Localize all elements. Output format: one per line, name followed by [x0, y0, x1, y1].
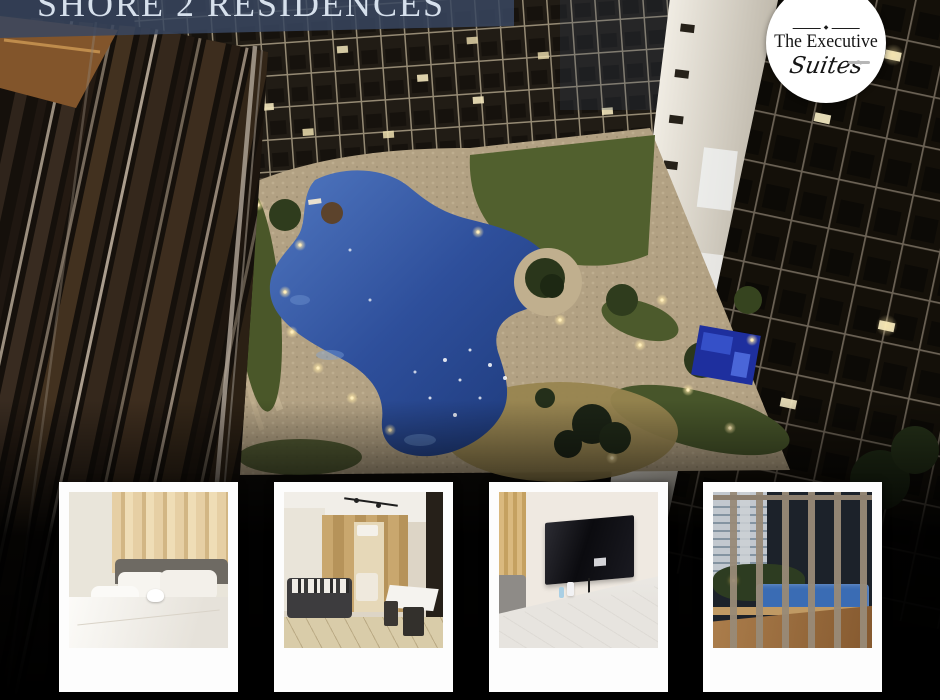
dining-chair: [384, 601, 398, 626]
bedroom-photo: [69, 492, 228, 648]
logo-name-line2: Suites: [764, 53, 889, 79]
listing-flyer: SHORE 2 RESIDENCES ◆ The Executive Suite…: [0, 0, 940, 700]
tv-glare: [594, 557, 606, 566]
railing-top: [713, 495, 872, 500]
logo-name-line1: The Executive: [770, 31, 883, 53]
rolled-towel: [147, 589, 164, 602]
air-conditioner: [357, 525, 378, 536]
flat-screen-tv: [545, 515, 634, 585]
railing-bars: [713, 492, 872, 648]
daybed: [321, 202, 343, 224]
logo-fineprint: [848, 61, 870, 64]
inner-bed: [356, 573, 378, 601]
bottle: [559, 587, 564, 598]
living-dining-photo: [284, 492, 443, 648]
tv-desk-photo: [499, 492, 658, 648]
gallery-thumb-tv[interactable]: [489, 482, 668, 692]
gallery-thumb-bedroom[interactable]: [59, 482, 238, 692]
balcony-pool-view-photo: [713, 492, 872, 648]
gallery-thumb-living[interactable]: [274, 482, 453, 692]
striped-cushions: [292, 579, 349, 593]
property-title: SHORE 2 RESIDENCES: [37, 0, 445, 22]
gallery-thumb-balcony[interactable]: [703, 482, 882, 692]
spray-bottle: [567, 582, 574, 596]
dining-chair: [403, 607, 424, 635]
playground: [691, 325, 761, 385]
